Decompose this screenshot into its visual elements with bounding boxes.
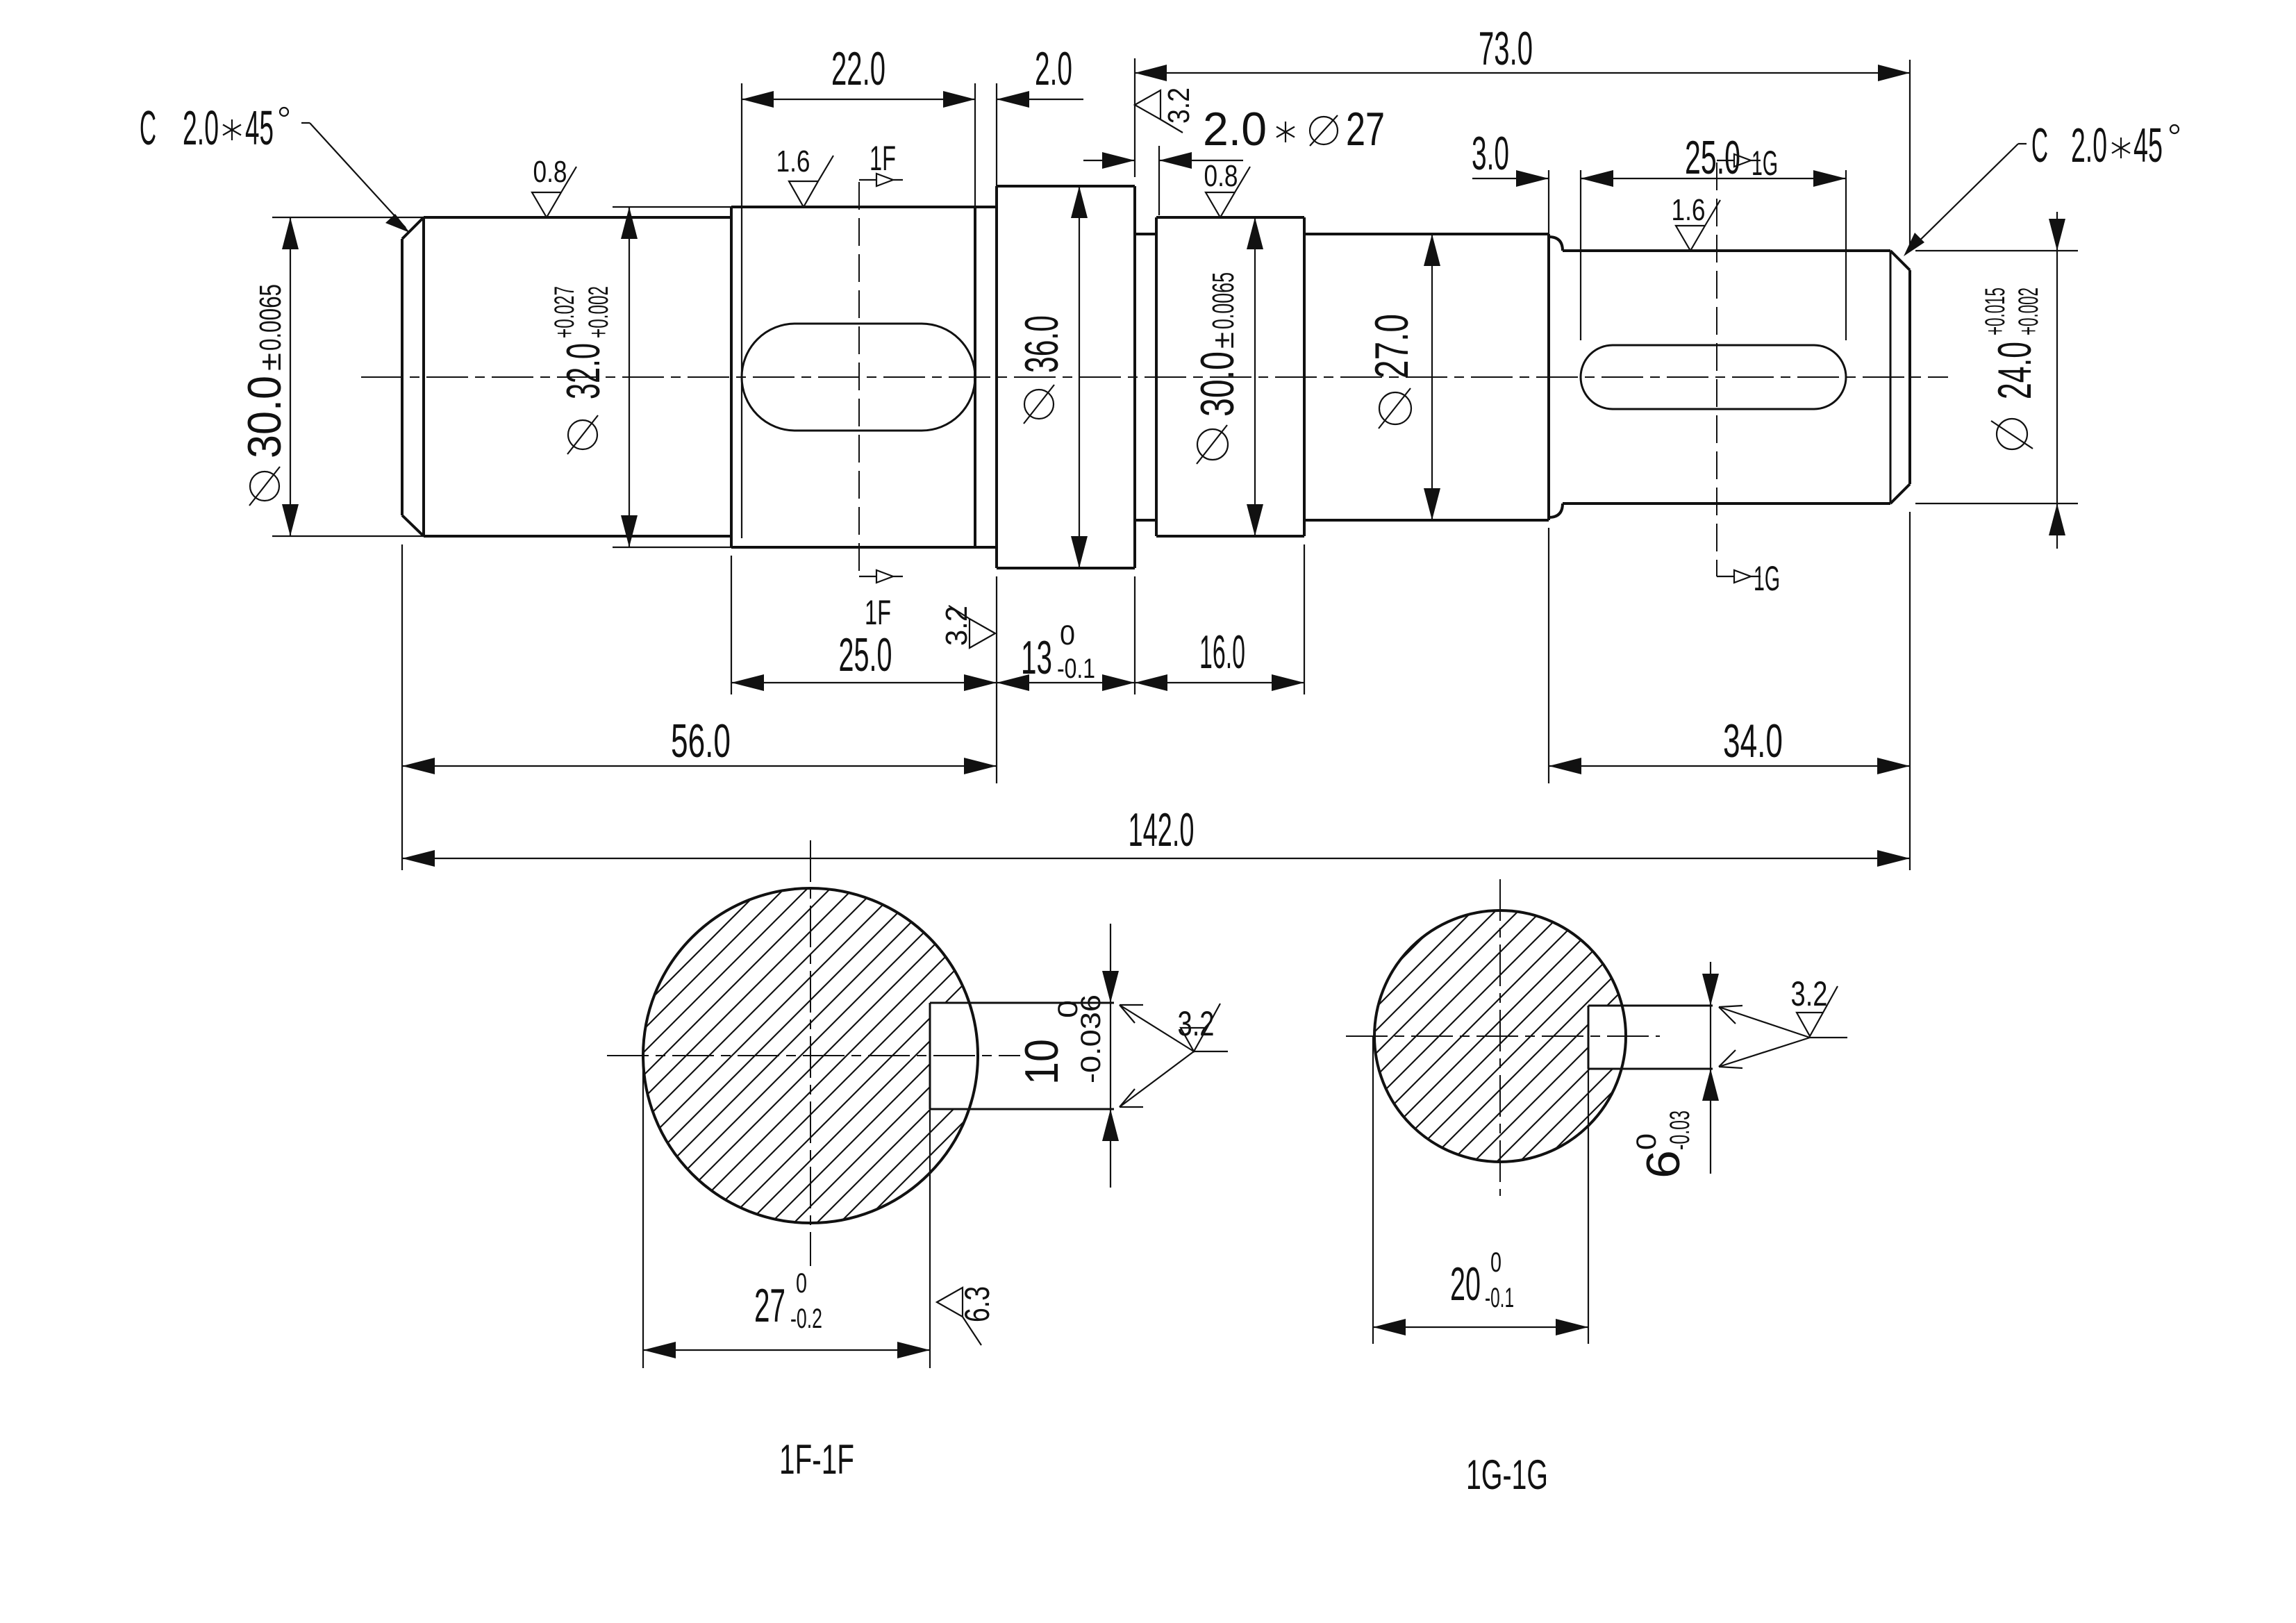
svg-text:30.0: 30.0 <box>238 376 291 458</box>
svg-text:27.0: 27.0 <box>1365 314 1418 378</box>
svg-text:73.0: 73.0 <box>1479 22 1533 75</box>
svg-text:±: ± <box>1206 332 1240 349</box>
svg-text:22.0: 22.0 <box>831 42 885 95</box>
svg-text:0.8: 0.8 <box>533 155 567 189</box>
svg-text:1G: 1G <box>1754 559 1780 598</box>
svg-text:36.0: 36.0 <box>1015 315 1068 373</box>
svg-text:1.6: 1.6 <box>776 144 810 178</box>
svg-text:16.0: 16.0 <box>1199 626 1245 679</box>
svg-text:-0.1: -0.1 <box>1485 1283 1514 1313</box>
svg-text:25.0: 25.0 <box>1685 131 1740 184</box>
svg-text:34.0: 34.0 <box>1723 715 1783 767</box>
svg-text:13: 13 <box>1021 631 1052 684</box>
svg-text:0.0065: 0.0065 <box>1206 272 1240 329</box>
svg-text:56.0: 56.0 <box>671 715 731 767</box>
svg-text:-0.036: -0.036 <box>1076 994 1106 1083</box>
svg-text:1G-1G: 1G-1G <box>1466 1451 1548 1498</box>
svg-text:-0.2: -0.2 <box>790 1304 822 1334</box>
svg-text:25.0: 25.0 <box>839 629 892 681</box>
svg-text:-0.03: -0.03 <box>1665 1110 1695 1150</box>
svg-text:1F: 1F <box>870 139 896 178</box>
svg-text:142.0: 142.0 <box>1129 804 1195 856</box>
svg-text:1F-1F: 1F-1F <box>779 1436 854 1483</box>
svg-text:±: ± <box>253 353 288 371</box>
svg-text:1G: 1G <box>1752 144 1778 183</box>
svg-text:10: 10 <box>1015 1039 1068 1085</box>
svg-text:-0.1: -0.1 <box>1057 654 1095 684</box>
svg-text:0: 0 <box>796 1268 807 1299</box>
svg-text:1.6: 1.6 <box>1672 193 1706 227</box>
svg-text:2.0: 2.0 <box>1035 42 1072 95</box>
svg-text:3.0: 3.0 <box>1472 127 1509 180</box>
svg-text:45: 45 <box>245 101 274 155</box>
svg-text:+0.002: +0.002 <box>2013 288 2044 335</box>
svg-text:30.0: 30.0 <box>1191 351 1244 417</box>
svg-text:+0.002: +0.002 <box>583 286 614 338</box>
svg-text:27: 27 <box>754 1279 785 1332</box>
svg-text:0: 0 <box>1631 1133 1662 1150</box>
svg-text:+0.027: +0.027 <box>549 286 580 338</box>
svg-text:+0.015: +0.015 <box>1980 288 2011 335</box>
svg-text:0: 0 <box>1490 1247 1501 1278</box>
svg-text:3.2: 3.2 <box>1791 974 1828 1013</box>
svg-text:C: C <box>140 101 156 155</box>
svg-text:27: 27 <box>1346 103 1385 156</box>
svg-text:3.2: 3.2 <box>1162 88 1196 124</box>
svg-text:C: C <box>2031 118 2048 172</box>
svg-text:0.8: 0.8 <box>1204 159 1238 193</box>
svg-text:0.0065: 0.0065 <box>253 284 288 351</box>
svg-text:1F: 1F <box>865 593 891 632</box>
svg-text:0: 0 <box>1060 620 1075 651</box>
svg-text:45: 45 <box>2133 118 2163 172</box>
svg-text:6: 6 <box>1637 1150 1690 1179</box>
svg-text:2.0: 2.0 <box>183 101 219 155</box>
svg-text:3.2: 3.2 <box>940 606 974 646</box>
svg-text:2.0: 2.0 <box>1203 103 1267 156</box>
svg-text:24.0: 24.0 <box>1988 342 2041 399</box>
svg-text:20: 20 <box>1450 1258 1481 1310</box>
svg-text:2.0: 2.0 <box>2071 118 2107 172</box>
svg-text:32.0: 32.0 <box>557 343 610 399</box>
